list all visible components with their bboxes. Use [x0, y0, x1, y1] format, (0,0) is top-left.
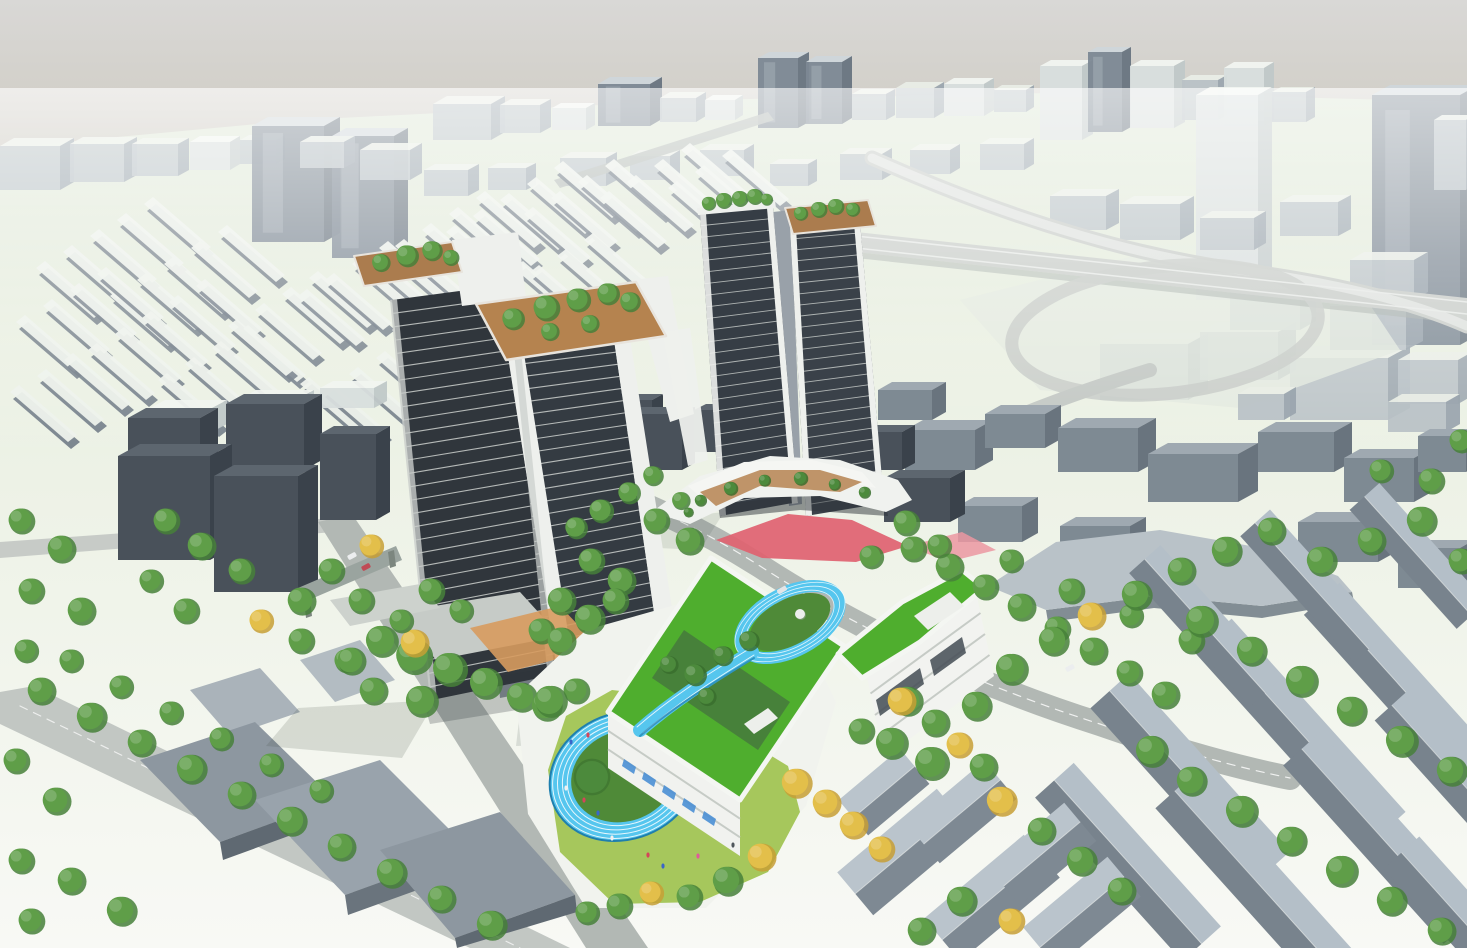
tree-icon: [259, 753, 280, 774]
tree-icon: [676, 528, 701, 553]
tree-highlight: [678, 530, 690, 542]
tree-icon: [927, 534, 948, 555]
tree-icon: [987, 787, 1013, 813]
tree-highlight: [1451, 431, 1461, 441]
tree-icon: [869, 837, 892, 860]
tree-highlight: [1279, 829, 1292, 842]
tree-highlight: [622, 294, 630, 302]
tree-icon: [470, 668, 498, 696]
tree-highlight: [686, 666, 695, 675]
tree-icon: [107, 897, 133, 923]
tree-icon: [209, 727, 230, 748]
tree-icon: [406, 686, 434, 714]
tree-icon: [698, 688, 714, 704]
tree-highlight: [261, 755, 271, 765]
tree-icon: [159, 701, 180, 722]
tree-icon: [644, 509, 667, 532]
tree-highlight: [60, 870, 72, 882]
tree-highlight: [903, 539, 914, 550]
building-face: [905, 430, 975, 470]
tree-highlight: [871, 839, 882, 850]
tree-highlight: [1409, 509, 1422, 522]
tree-icon: [859, 487, 870, 498]
tree-highlight: [750, 846, 762, 858]
tree-icon: [1386, 726, 1414, 754]
tree-highlight: [161, 703, 171, 713]
tree-icon: [589, 499, 610, 520]
tree-icon: [228, 782, 253, 807]
tree-icon: [1307, 547, 1333, 573]
tree-icon: [289, 629, 312, 652]
tree-icon: [1277, 827, 1303, 853]
tree-icon: [1177, 767, 1203, 793]
building-side: [902, 425, 915, 470]
tree-icon: [828, 199, 842, 213]
tree-highlight: [1309, 549, 1322, 562]
tree-icon: [947, 733, 970, 756]
tree-highlight: [430, 888, 442, 900]
tree-icon: [732, 191, 746, 205]
tree-icon: [684, 664, 703, 683]
tree-icon: [154, 509, 177, 532]
building-face: [1258, 432, 1334, 472]
person-figure: [582, 797, 585, 802]
tree-highlight: [591, 501, 601, 511]
tree-icon: [277, 807, 303, 833]
tree-icon: [999, 549, 1020, 570]
tree-icon: [109, 675, 130, 696]
tree-highlight: [550, 630, 562, 642]
tree-highlight: [567, 519, 576, 528]
tree-highlight: [674, 494, 682, 502]
tree-highlight: [924, 712, 936, 724]
tree-icon: [1108, 878, 1133, 903]
tree-highlight: [610, 570, 622, 582]
tree-highlight: [1124, 583, 1137, 596]
tree-highlight: [715, 648, 723, 656]
dome-object: [795, 609, 805, 619]
tree-icon: [1419, 469, 1442, 492]
tree-highlight: [403, 632, 415, 644]
tree-icon: [428, 886, 453, 911]
tree-icon: [309, 779, 330, 800]
tree-icon: [1039, 627, 1065, 653]
tree-highlight: [130, 732, 142, 744]
tree-icon: [477, 911, 503, 937]
tree-highlight: [748, 190, 755, 197]
tree-highlight: [842, 814, 854, 826]
tree-highlight: [989, 789, 1002, 802]
tree-icon: [507, 683, 533, 709]
tree-icon: [9, 509, 32, 532]
tree-icon: [672, 492, 688, 508]
tree-icon: [1337, 697, 1363, 723]
tree-highlight: [1451, 551, 1462, 562]
tree-icon: [319, 559, 342, 582]
tree-highlight: [1041, 629, 1054, 642]
tree-icon: [249, 609, 270, 630]
tree-highlight: [696, 496, 701, 501]
tree-highlight: [605, 591, 616, 602]
tree-icon: [396, 245, 415, 264]
tree-icon: [548, 628, 573, 653]
tree-highlight: [109, 899, 122, 912]
tree-icon: [603, 589, 626, 612]
tree-icon: [747, 189, 761, 203]
tree-icon: [1377, 887, 1403, 913]
tree-icon: [908, 918, 933, 943]
tree-highlight: [1181, 631, 1192, 642]
tree-highlight: [156, 511, 167, 522]
tree-icon: [1212, 537, 1238, 563]
tree-icon: [849, 719, 872, 742]
building-side: [376, 426, 390, 520]
tree-highlight: [717, 194, 724, 201]
tree-highlight: [1138, 738, 1151, 751]
tree-highlight: [815, 792, 827, 804]
building-face: [214, 476, 298, 592]
tree-icon: [639, 881, 660, 902]
building-face: [320, 434, 376, 520]
tree-icon: [794, 207, 806, 219]
building-face: [1388, 402, 1446, 432]
person-figure: [696, 853, 699, 858]
person-figure: [661, 863, 664, 868]
tree-icon: [829, 479, 840, 490]
tree-icon: [566, 288, 587, 309]
tree-icon: [1067, 847, 1093, 873]
person-figure: [586, 732, 589, 737]
tree-highlight: [1371, 461, 1381, 471]
tree-icon: [548, 588, 573, 613]
tree-icon: [229, 559, 252, 582]
tree-icon: [813, 790, 838, 815]
tree-highlight: [609, 896, 620, 907]
tree-highlight: [61, 651, 71, 661]
tree-highlight: [231, 561, 242, 572]
tree-highlight: [861, 547, 871, 557]
tree-highlight: [700, 690, 708, 698]
tree-highlight: [179, 757, 192, 770]
tree-icon: [695, 495, 706, 506]
person-figure: [569, 739, 572, 744]
tree-icon: [359, 534, 380, 555]
tree-highlight: [368, 628, 381, 641]
tree-highlight: [141, 571, 151, 581]
tree-icon: [947, 887, 973, 913]
tree-icon: [702, 197, 714, 209]
tree-icon: [859, 545, 880, 566]
tree-highlight: [211, 729, 221, 739]
tree-highlight: [30, 680, 42, 692]
tree-icon: [618, 482, 637, 501]
tree-icon: [713, 867, 739, 893]
tree-highlight: [1214, 539, 1227, 552]
tree-highlight: [1010, 596, 1022, 608]
tree-highlight: [1439, 759, 1452, 772]
west-tower-crowns-terraces-part: [452, 232, 526, 306]
tree-highlight: [1379, 889, 1392, 902]
tree-icon: [449, 599, 470, 620]
person-figure: [564, 785, 567, 790]
tree-icon: [177, 755, 203, 781]
tree-highlight: [230, 784, 242, 796]
tree-icon: [1186, 606, 1214, 634]
tree-highlight: [1001, 551, 1011, 561]
tree-icon: [739, 631, 757, 649]
tree-icon: [1080, 638, 1105, 663]
tree-highlight: [949, 889, 962, 902]
tree-highlight: [444, 251, 451, 258]
tree-highlight: [362, 680, 374, 692]
tree-highlight: [583, 317, 591, 325]
tree-icon: [1122, 581, 1148, 607]
tree-highlight: [929, 536, 939, 546]
tree-icon: [128, 730, 153, 755]
tree-icon: [328, 834, 353, 859]
tree-highlight: [543, 325, 551, 333]
tree-icon: [502, 308, 521, 327]
tree-highlight: [878, 730, 891, 743]
tree-icon: [1028, 818, 1053, 843]
tree-icon: [1117, 661, 1140, 684]
tree-icon: [724, 482, 736, 494]
tree-icon: [77, 703, 103, 729]
tree-highlight: [479, 913, 492, 926]
tree-highlight: [812, 203, 819, 210]
tree-highlight: [436, 656, 450, 670]
tree-icon: [608, 568, 633, 593]
tree-icon: [401, 630, 426, 655]
tree-highlight: [679, 887, 690, 898]
tree-highlight: [1288, 668, 1301, 681]
tree-highlight: [860, 488, 865, 493]
tree-highlight: [662, 658, 670, 666]
tree-icon: [1428, 918, 1453, 943]
tree-highlight: [1061, 581, 1072, 592]
tree-highlight: [509, 685, 522, 698]
tree-highlight: [45, 790, 57, 802]
tree-icon: [713, 646, 731, 664]
tree-icon: [811, 202, 825, 216]
tree-icon: [360, 678, 385, 703]
building-face: [320, 388, 374, 408]
tree-highlight: [79, 705, 92, 718]
render-viewport: [0, 0, 1467, 948]
tree-highlight: [361, 536, 371, 546]
tree-icon: [377, 859, 403, 885]
tree-icon: [999, 909, 1022, 932]
tree-icon: [1326, 856, 1354, 884]
tree-icon: [535, 686, 563, 714]
tree-highlight: [829, 200, 836, 207]
tree-highlight: [111, 677, 121, 687]
tree-highlight: [1001, 911, 1012, 922]
tree-highlight: [641, 883, 651, 893]
tree-highlight: [421, 581, 432, 592]
tree-highlight: [568, 290, 578, 300]
tree-icon: [846, 203, 858, 215]
tree-highlight: [1260, 520, 1272, 532]
tree-icon: [1152, 682, 1177, 707]
tree-icon: [372, 254, 388, 270]
tree-highlight: [70, 600, 82, 612]
tree-icon: [349, 589, 372, 612]
tree-highlight: [291, 631, 302, 642]
tree-highlight: [11, 511, 22, 522]
tree-highlight: [504, 310, 513, 319]
tree-icon: [419, 579, 442, 602]
tree-highlight: [1119, 663, 1130, 674]
tree-highlight: [408, 688, 421, 701]
tree-highlight: [279, 809, 292, 822]
person-figure: [596, 810, 599, 815]
tree-highlight: [424, 243, 432, 251]
tree-highlight: [733, 192, 740, 199]
tree-icon: [840, 812, 865, 837]
person-figure: [731, 842, 734, 847]
tree-highlight: [351, 591, 362, 602]
tree-icon: [1358, 528, 1383, 553]
aerial-render: [0, 0, 1467, 948]
tree-highlight: [645, 468, 653, 476]
building-face: [878, 390, 932, 420]
building-face: [1058, 428, 1138, 472]
tree-highlight: [795, 473, 801, 479]
tree-icon: [1168, 558, 1193, 583]
tree-icon: [389, 609, 410, 630]
tree-highlight: [1154, 684, 1166, 696]
tree-icon: [660, 656, 676, 672]
tree-highlight: [550, 590, 562, 602]
tree-icon: [43, 788, 68, 813]
tree-highlight: [340, 650, 352, 662]
tree-icon: [922, 710, 947, 735]
tree-highlight: [760, 476, 765, 481]
tree-highlight: [176, 601, 187, 612]
tree-highlight: [190, 535, 202, 547]
building-face: [226, 404, 304, 470]
tree-highlight: [795, 208, 801, 214]
tree-highlight: [6, 751, 17, 762]
tree-highlight: [21, 911, 32, 922]
tree-icon: [677, 885, 700, 908]
infield-tree: [576, 761, 608, 793]
tree-icon: [1286, 666, 1314, 694]
tree-highlight: [472, 670, 485, 683]
tree-icon: [1078, 603, 1103, 628]
tree-icon: [996, 654, 1024, 682]
tree-icon: [422, 241, 440, 259]
tree-icon: [68, 598, 93, 623]
tree-highlight: [1080, 605, 1092, 617]
tree-icon: [794, 472, 806, 484]
person-figure: [610, 835, 613, 840]
tree-icon: [1258, 518, 1283, 543]
tree-icon: [876, 728, 904, 756]
tree-highlight: [251, 611, 261, 621]
tree-highlight: [1030, 820, 1042, 832]
tree-icon: [1226, 796, 1254, 824]
tree-icon: [19, 579, 42, 602]
tree-icon: [579, 549, 602, 572]
tree-icon: [188, 533, 213, 558]
tree-icon: [748, 844, 773, 869]
tree-highlight: [949, 735, 960, 746]
tree-highlight: [16, 641, 26, 651]
tree-highlight: [581, 551, 592, 562]
tree-highlight: [321, 561, 332, 572]
tree-highlight: [379, 861, 392, 874]
tree-highlight: [1082, 640, 1094, 652]
tree-highlight: [374, 256, 382, 264]
tree-icon: [581, 315, 597, 331]
tree-highlight: [537, 688, 550, 701]
tree-icon: [915, 747, 945, 777]
tree-highlight: [725, 483, 731, 489]
tree-icon: [973, 575, 996, 598]
tree-highlight: [1328, 858, 1341, 871]
tree-highlight: [851, 721, 862, 732]
tree-icon: [1008, 594, 1033, 619]
tree-highlight: [1339, 699, 1352, 712]
building-side: [950, 470, 965, 522]
tree-icon: [962, 692, 988, 718]
tree-highlight: [972, 756, 984, 768]
tree-highlight: [975, 577, 986, 588]
tree-highlight: [391, 611, 401, 621]
tree-highlight: [1188, 608, 1201, 621]
person-figure: [646, 852, 649, 857]
tree-highlight: [964, 694, 977, 707]
building-face: [985, 414, 1045, 448]
tree-highlight: [715, 869, 728, 882]
tree-icon: [575, 901, 596, 922]
tree-icon: [759, 475, 770, 486]
tree-icon: [338, 648, 363, 673]
tree-icon: [534, 296, 557, 319]
tree-icon: [4, 749, 27, 772]
tree-icon: [1237, 637, 1263, 663]
tree-highlight: [620, 484, 629, 493]
tree-highlight: [830, 480, 835, 485]
tree-highlight: [536, 298, 547, 309]
tree-highlight: [1228, 798, 1241, 811]
tree-highlight: [311, 781, 321, 791]
building-side: [304, 394, 322, 470]
tree-icon: [1369, 459, 1390, 480]
tree-highlight: [1179, 769, 1192, 782]
tree-highlight: [910, 920, 922, 932]
tree-highlight: [762, 195, 767, 200]
tree-icon: [761, 194, 772, 205]
tree-highlight: [21, 581, 32, 592]
tree-highlight: [290, 590, 302, 602]
building-face: [1148, 454, 1238, 502]
tree-icon: [288, 588, 313, 613]
tree-highlight: [330, 836, 342, 848]
tree-icon: [59, 649, 80, 670]
tree-highlight: [741, 633, 749, 641]
tree-highlight: [531, 621, 542, 632]
tree-highlight: [896, 513, 907, 524]
tree-highlight: [577, 607, 590, 620]
tree-highlight: [577, 903, 587, 913]
tree-icon: [9, 849, 32, 872]
tree-highlight: [1069, 849, 1082, 862]
tree-highlight: [11, 851, 22, 862]
tree-icon: [597, 283, 616, 302]
